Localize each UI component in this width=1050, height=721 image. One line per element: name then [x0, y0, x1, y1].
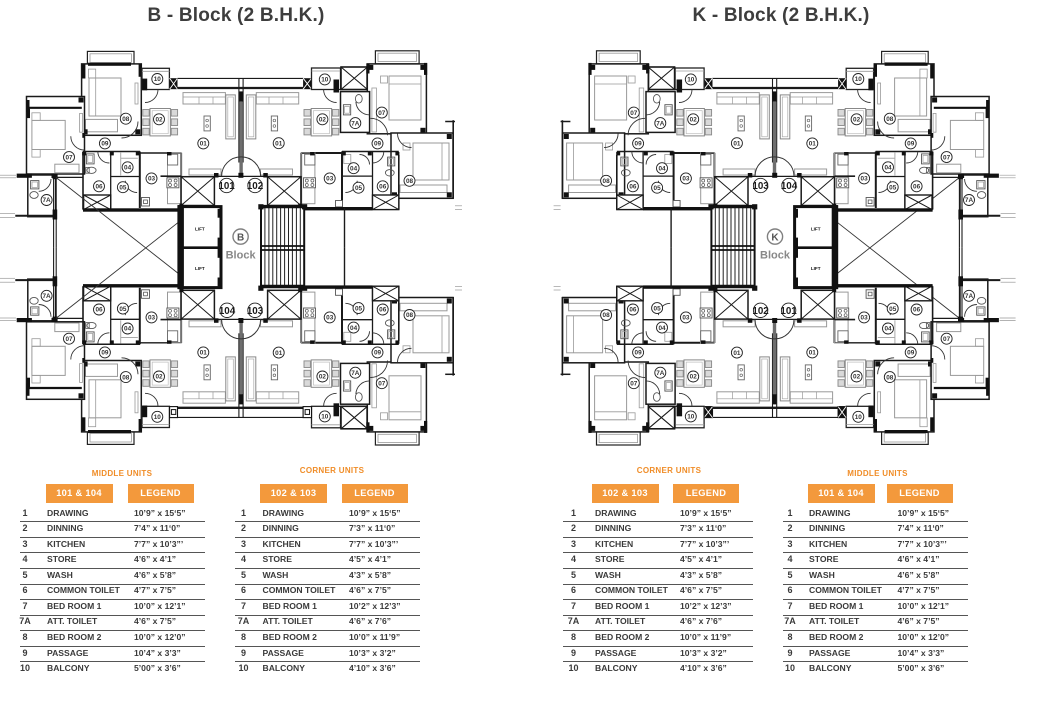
svg-text:06: 06 [913, 307, 921, 314]
svg-text:LIFT: LIFT [811, 266, 821, 271]
svg-text:03: 03 [326, 176, 334, 183]
svg-text:02: 02 [319, 374, 327, 381]
svg-text:10: 10 [154, 76, 162, 83]
svg-text:08: 08 [603, 312, 611, 319]
svg-text:06: 06 [95, 307, 103, 314]
svg-text:03: 03 [148, 315, 156, 322]
svg-text:02: 02 [155, 374, 163, 381]
svg-text:103: 103 [752, 181, 769, 192]
svg-text:B: B [237, 232, 244, 243]
svg-text:03: 03 [861, 315, 869, 322]
svg-text:101: 101 [218, 181, 235, 192]
svg-text:7A: 7A [43, 293, 52, 300]
svg-text:01: 01 [733, 350, 741, 357]
svg-text:04: 04 [350, 165, 358, 172]
svg-text:LIFT: LIFT [195, 227, 205, 232]
svg-text:103: 103 [247, 306, 264, 317]
svg-text:10: 10 [154, 414, 162, 421]
svg-text:03: 03 [682, 315, 690, 322]
svg-text:04: 04 [124, 326, 132, 333]
svg-text:08: 08 [886, 116, 894, 123]
svg-text:7A: 7A [965, 197, 974, 204]
svg-text:Block: Block [760, 250, 791, 262]
svg-text:03: 03 [148, 176, 156, 183]
svg-text:06: 06 [95, 184, 103, 191]
svg-text:01: 01 [733, 140, 741, 147]
svg-text:07: 07 [65, 154, 73, 161]
svg-text:06: 06 [629, 184, 637, 191]
svg-text:09: 09 [635, 350, 643, 357]
svg-text:02: 02 [690, 374, 698, 381]
svg-text:09: 09 [101, 141, 109, 148]
svg-text:7A: 7A [43, 197, 52, 204]
svg-text:06: 06 [629, 307, 637, 314]
svg-text:09: 09 [374, 350, 382, 357]
svg-text:01: 01 [809, 350, 817, 357]
svg-text:04: 04 [658, 165, 666, 172]
svg-text:01: 01 [809, 141, 817, 148]
svg-text:LIFT: LIFT [195, 266, 205, 271]
svg-text:07: 07 [65, 336, 73, 343]
svg-text:104: 104 [219, 306, 236, 317]
svg-text:01: 01 [200, 141, 208, 148]
svg-text:101: 101 [780, 306, 797, 317]
svg-text:02: 02 [853, 117, 861, 124]
svg-text:06: 06 [379, 184, 387, 191]
svg-text:08: 08 [122, 116, 130, 123]
svg-text:02: 02 [853, 374, 861, 381]
svg-text:07: 07 [378, 110, 386, 117]
svg-text:08: 08 [406, 312, 414, 319]
svg-text:04: 04 [124, 165, 132, 172]
svg-text:08: 08 [406, 178, 414, 185]
svg-text:03: 03 [861, 176, 869, 183]
svg-text:102: 102 [752, 306, 769, 317]
svg-text:10: 10 [321, 414, 329, 421]
svg-text:05: 05 [654, 305, 662, 312]
svg-text:08: 08 [603, 178, 611, 185]
svg-text:01: 01 [275, 350, 283, 357]
svg-text:Block: Block [226, 250, 257, 262]
svg-text:01: 01 [200, 350, 208, 357]
svg-text:02: 02 [155, 117, 163, 124]
svg-text:05: 05 [889, 184, 897, 191]
svg-text:10: 10 [321, 77, 329, 84]
svg-text:07: 07 [943, 154, 951, 161]
svg-text:02: 02 [690, 117, 698, 124]
svg-text:08: 08 [122, 374, 130, 381]
svg-text:7A: 7A [965, 293, 974, 300]
svg-text:05: 05 [889, 306, 897, 313]
svg-text:7A: 7A [656, 370, 665, 377]
svg-text:02: 02 [319, 117, 327, 124]
svg-text:07: 07 [630, 380, 638, 387]
svg-text:10: 10 [855, 414, 863, 421]
svg-text:09: 09 [907, 141, 915, 148]
svg-text:102: 102 [247, 181, 264, 192]
svg-text:07: 07 [378, 380, 386, 387]
svg-text:09: 09 [101, 350, 109, 357]
svg-text:7A: 7A [656, 120, 665, 127]
svg-text:7A: 7A [351, 370, 360, 377]
svg-text:04: 04 [350, 325, 358, 332]
svg-text:05: 05 [119, 306, 127, 313]
svg-text:05: 05 [119, 184, 127, 191]
svg-text:LIFT: LIFT [811, 227, 821, 232]
svg-text:01: 01 [275, 140, 283, 147]
svg-text:03: 03 [682, 176, 690, 183]
svg-text:7A: 7A [351, 120, 360, 127]
svg-text:05: 05 [355, 185, 363, 192]
svg-text:06: 06 [379, 307, 387, 314]
svg-text:09: 09 [907, 350, 915, 357]
svg-text:04: 04 [884, 165, 892, 172]
svg-text:07: 07 [630, 110, 638, 117]
svg-text:06: 06 [913, 184, 921, 191]
svg-text:07: 07 [943, 336, 951, 343]
svg-text:09: 09 [374, 141, 382, 148]
svg-text:10: 10 [687, 77, 695, 84]
svg-text:05: 05 [355, 305, 363, 312]
svg-text:03: 03 [326, 315, 334, 322]
svg-text:05: 05 [654, 185, 662, 192]
svg-text:104: 104 [781, 181, 798, 192]
svg-text:04: 04 [658, 325, 666, 332]
svg-text:09: 09 [635, 141, 643, 148]
svg-text:10: 10 [855, 76, 863, 83]
svg-text:10: 10 [687, 414, 695, 421]
svg-text:04: 04 [884, 326, 892, 333]
svg-text:08: 08 [886, 374, 894, 381]
svg-text:K: K [771, 232, 779, 243]
